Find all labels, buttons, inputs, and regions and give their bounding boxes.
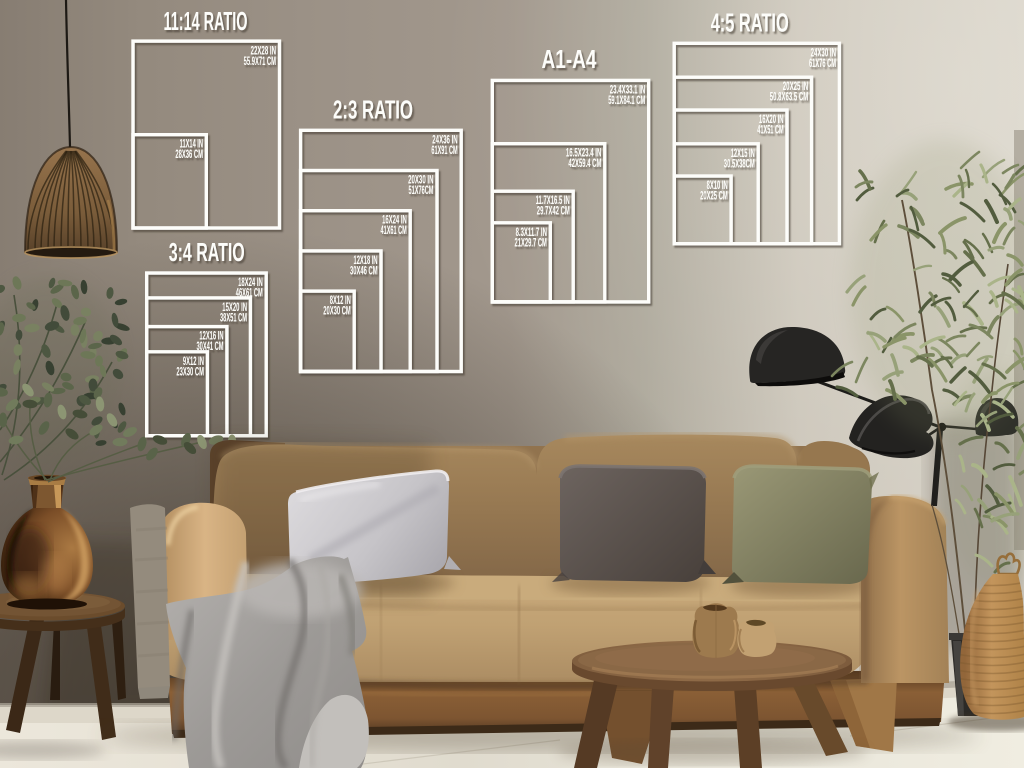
svg-text:50.8X63.5 CM: 50.8X63.5 CM	[770, 90, 808, 104]
svg-text:21X29.7 CM: 21X29.7 CM	[515, 235, 547, 249]
svg-text:3:4 RATIO: 3:4 RATIO	[169, 237, 245, 267]
svg-text:A1-A4: A1-A4	[542, 44, 597, 74]
svg-text:29.7X42 CM: 29.7X42 CM	[537, 204, 570, 218]
svg-text:30X41 CM: 30X41 CM	[197, 339, 224, 353]
svg-text:55.9X71 CM: 55.9X71 CM	[244, 54, 276, 68]
svg-text:38X51 CM: 38X51 CM	[220, 310, 247, 324]
svg-text:20X25 CM: 20X25 CM	[700, 189, 728, 203]
svg-text:59.1X84.1 CM: 59.1X84.1 CM	[608, 93, 645, 107]
svg-text:23X30 CM: 23X30 CM	[176, 364, 204, 378]
svg-text:41X61 CM: 41X61 CM	[381, 223, 407, 237]
svg-text:41X51 CM: 41X51 CM	[757, 123, 783, 137]
svg-text:42X59.4 CM: 42X59.4 CM	[568, 156, 601, 170]
svg-text:30.5X38CM: 30.5X38CM	[724, 156, 755, 170]
svg-text:2:3 RATIO: 2:3 RATIO	[333, 94, 413, 124]
svg-text:30X46 CM: 30X46 CM	[350, 263, 378, 277]
svg-text:61X76 CM: 61X76 CM	[809, 56, 836, 70]
svg-text:28X36 CM: 28X36 CM	[175, 147, 203, 161]
svg-text:20X30 CM: 20X30 CM	[323, 304, 351, 318]
svg-text:11:14 RATIO: 11:14 RATIO	[164, 6, 248, 36]
svg-text:4:5 RATIO: 4:5 RATIO	[711, 8, 789, 38]
svg-text:51X76CM: 51X76CM	[409, 183, 434, 197]
svg-text:61X91 CM: 61X91 CM	[431, 143, 457, 157]
svg-text:46X61 CM: 46X61 CM	[236, 286, 263, 300]
